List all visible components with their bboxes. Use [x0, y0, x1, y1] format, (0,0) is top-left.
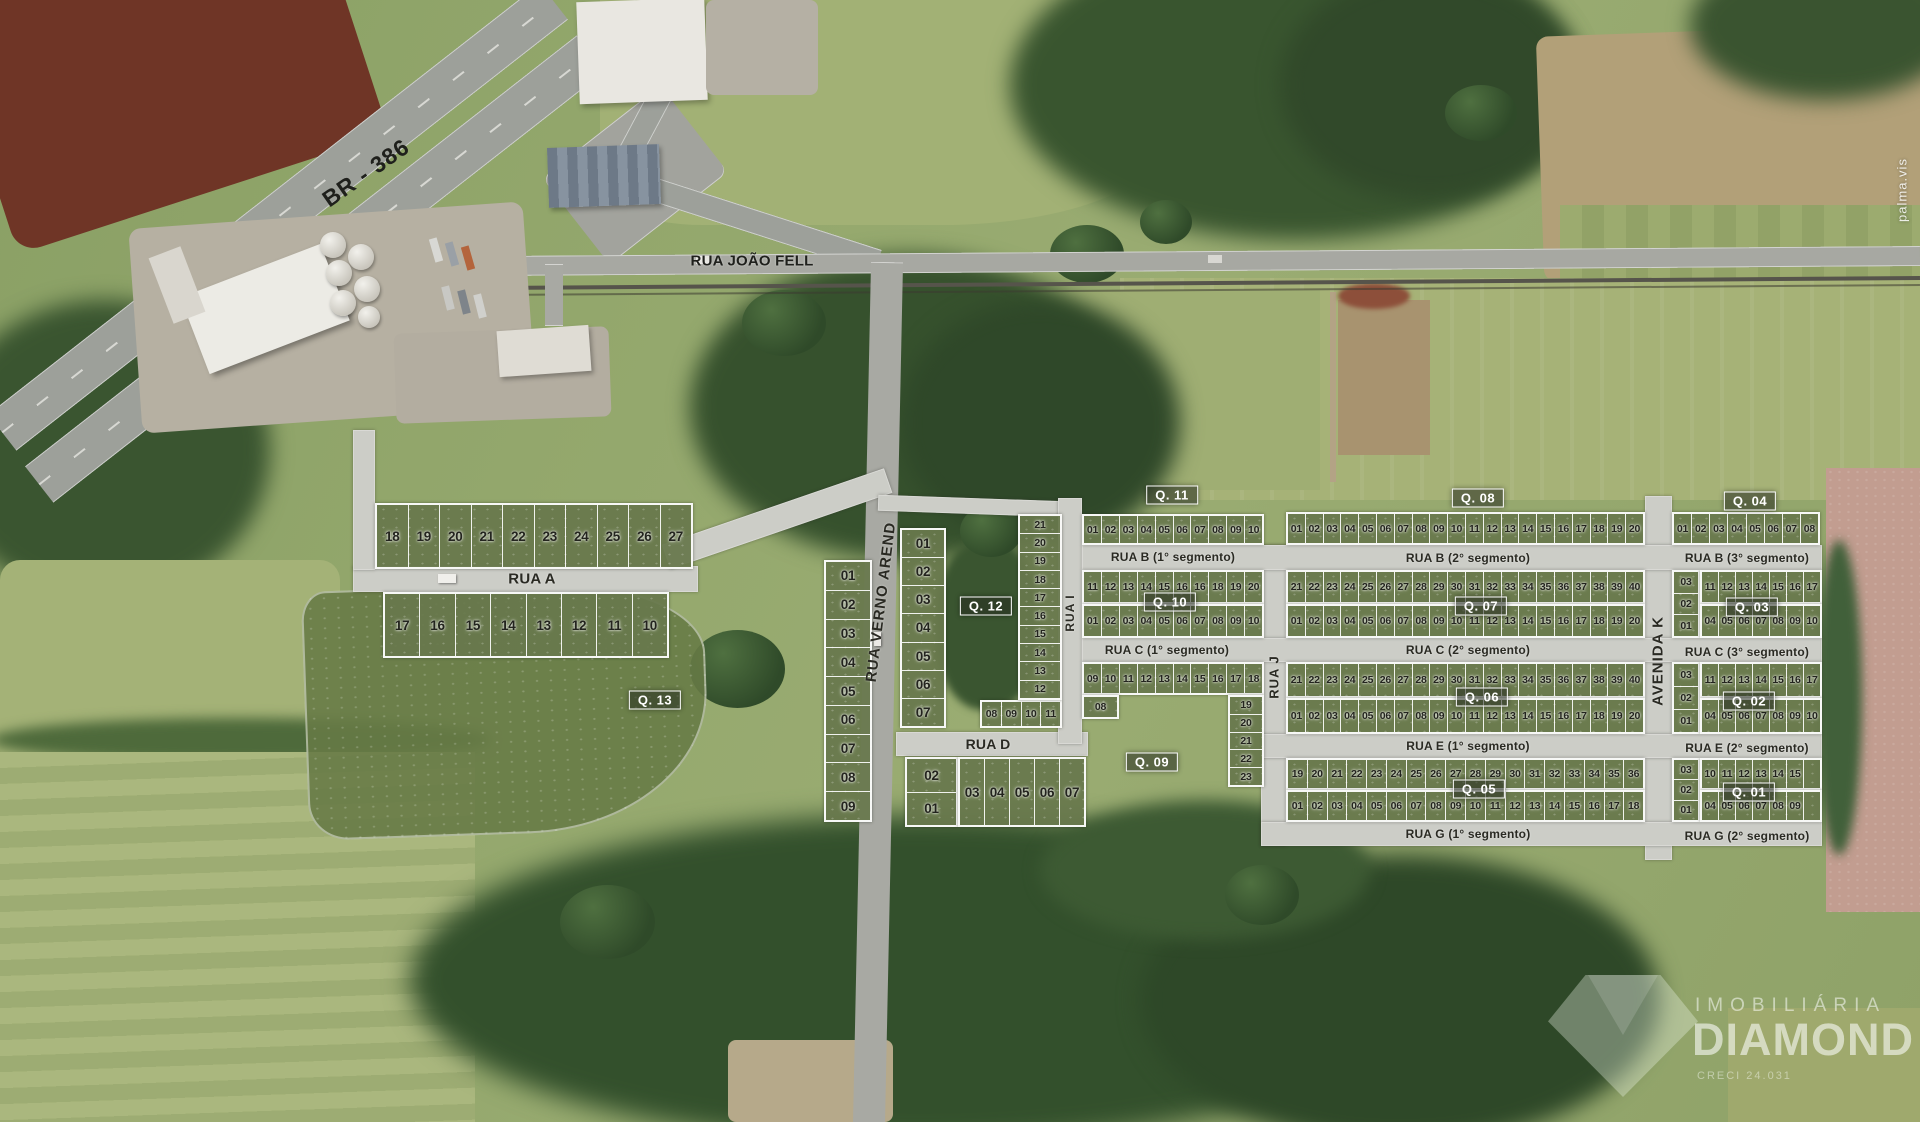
street-label-rua-c-seg2: RUA C (2° segmento) [1406, 643, 1530, 657]
agency-name-text: DIAMOND [1692, 1014, 1920, 1066]
aerial-map-stage[interactable]: 1819202122232425262717161514131211100102… [0, 0, 1920, 1122]
quadra-badge-q09[interactable]: Q. 09 [1126, 753, 1178, 772]
quadra-badge-q06[interactable]: Q. 06 [1456, 688, 1508, 707]
diamond-logo: IMOBILIÁRIA DIAMOND CRECI 24.031 [1540, 970, 1920, 1100]
street-label-rua-i: RUA I [1063, 594, 1077, 631]
street-label-rua-joao-fell: RUA JOÃO FELL [691, 253, 814, 270]
street-label-rua-b-seg2: RUA B (2° segmento) [1406, 551, 1530, 565]
quadra-badge-q07[interactable]: Q. 07 [1455, 597, 1507, 616]
street-label-rua-c-seg3: RUA C (3° segmento) [1685, 645, 1809, 659]
quadra-badge-q04[interactable]: Q. 04 [1724, 492, 1776, 511]
agency-creci-text: CRECI 24.031 [1697, 1070, 1792, 1082]
quadra-badge-q02[interactable]: Q. 02 [1723, 692, 1775, 711]
street-label-avenida-k: AVENIDA K [1650, 616, 1667, 706]
quadra-badge-q01[interactable]: Q. 01 [1723, 783, 1775, 802]
street-label-rua-b-seg1: RUA B (1° segmento) [1111, 550, 1235, 564]
street-label-rua-a: RUA A [508, 571, 555, 588]
quadra-badges-layer: Q. 01Q. 02Q. 03Q. 04Q. 05Q. 06Q. 07Q. 08… [0, 0, 1920, 1122]
street-label-rua-g-seg2: RUA G (2° segmento) [1685, 829, 1810, 843]
street-label-rua-j: RUA J [1267, 655, 1282, 699]
street-label-rua-d: RUA D [966, 736, 1011, 752]
quadra-badge-q03[interactable]: Q. 03 [1726, 598, 1778, 617]
street-label-rua-b-seg3: RUA B (3° segmento) [1685, 551, 1809, 565]
street-label-rua-e-seg2: RUA E (2° segmento) [1685, 741, 1809, 755]
quadra-badge-q13[interactable]: Q. 13 [629, 691, 681, 710]
quadra-badge-q05[interactable]: Q. 05 [1453, 780, 1505, 799]
street-label-rua-c-seg1: RUA C (1° segmento) [1105, 643, 1229, 657]
quadra-badge-q10[interactable]: Q. 10 [1144, 593, 1196, 612]
quadra-badge-q08[interactable]: Q. 08 [1452, 489, 1504, 508]
quadra-badge-q12[interactable]: Q. 12 [960, 597, 1012, 616]
street-label-rua-e-seg1: RUA E (1° segmento) [1406, 739, 1530, 753]
street-label-rua-g-seg1: RUA G (1° segmento) [1406, 827, 1531, 841]
quadra-badge-q11[interactable]: Q. 11 [1146, 486, 1198, 505]
photo-credit-watermark: palma.vis [1895, 158, 1910, 222]
